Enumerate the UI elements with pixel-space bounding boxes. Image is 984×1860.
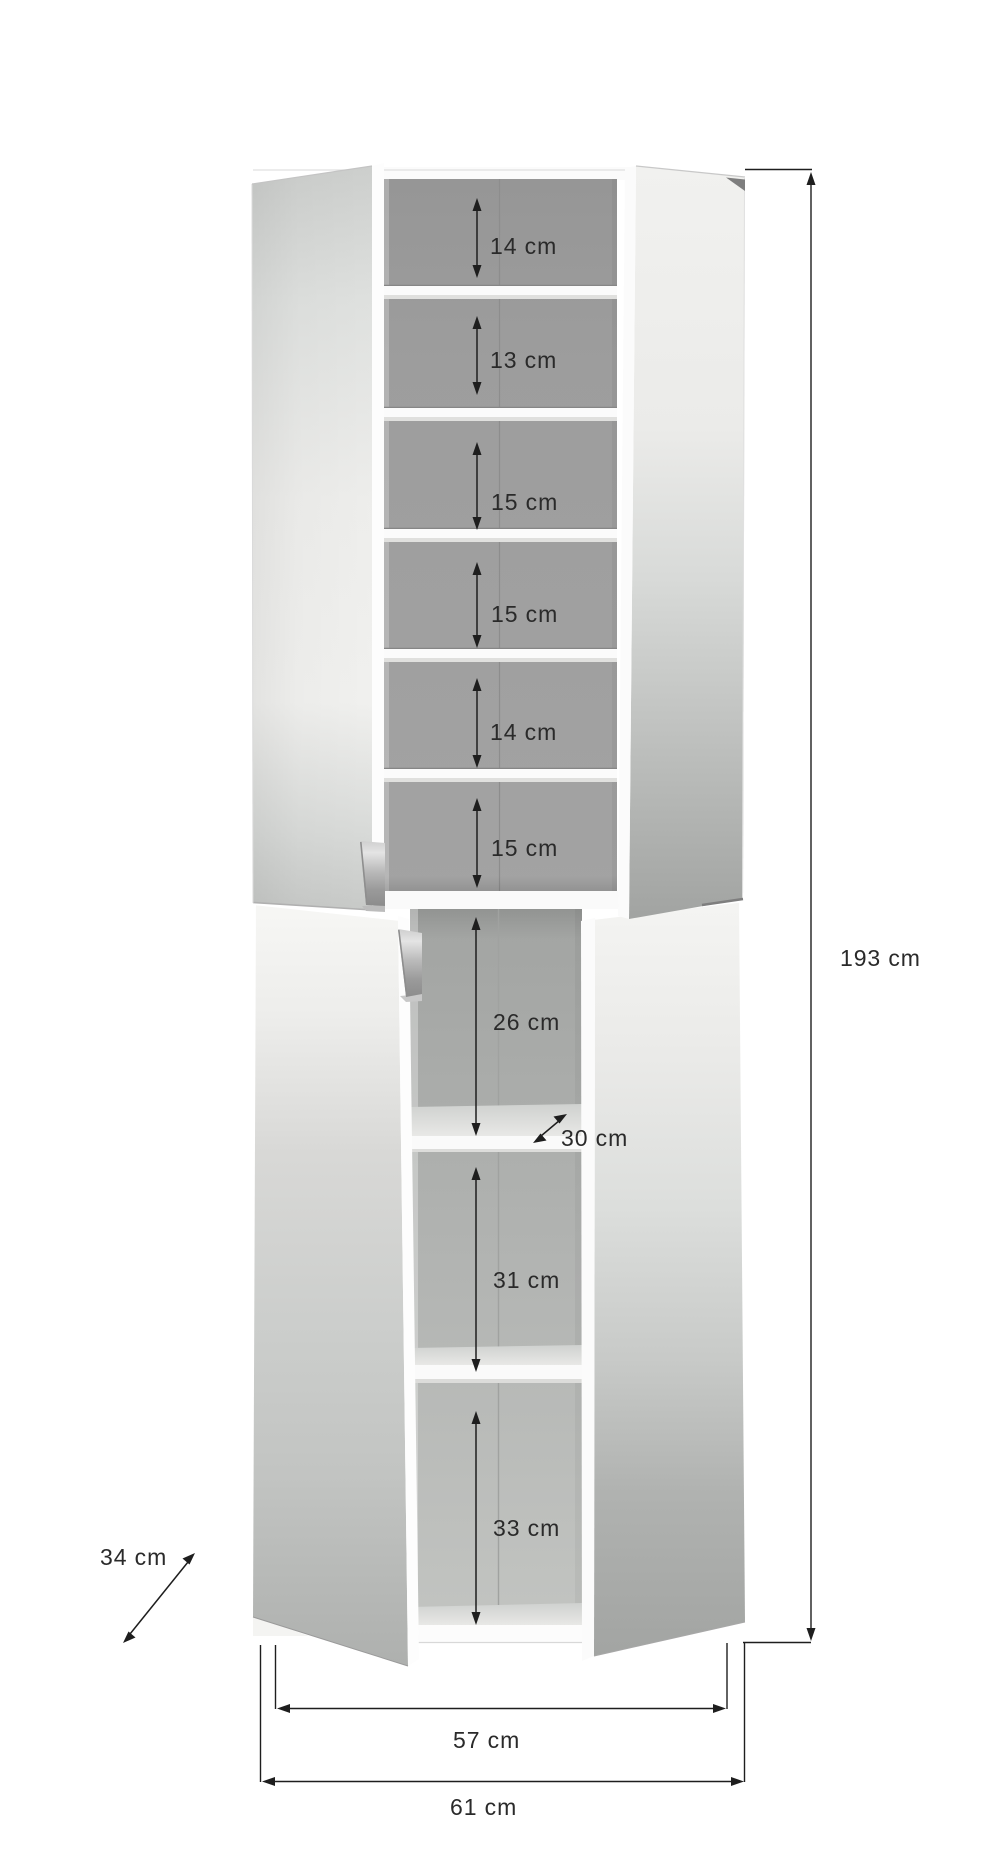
svg-text:13 cm: 13 cm (490, 347, 557, 373)
svg-text:30 cm: 30 cm (561, 1125, 628, 1151)
svg-text:57 cm: 57 cm (453, 1727, 520, 1753)
svg-text:31 cm: 31 cm (493, 1267, 560, 1293)
svg-text:14 cm: 14 cm (490, 233, 557, 259)
svg-text:34 cm: 34 cm (100, 1544, 167, 1570)
svg-text:15 cm: 15 cm (491, 835, 558, 861)
svg-text:193 cm: 193 cm (840, 945, 921, 971)
svg-text:15 cm: 15 cm (491, 601, 558, 627)
svg-text:26 cm: 26 cm (493, 1009, 560, 1035)
svg-text:15 cm: 15 cm (491, 489, 558, 515)
svg-text:14 cm: 14 cm (490, 719, 557, 745)
svg-text:33 cm: 33 cm (493, 1515, 560, 1541)
svg-text:61 cm: 61 cm (450, 1794, 517, 1820)
